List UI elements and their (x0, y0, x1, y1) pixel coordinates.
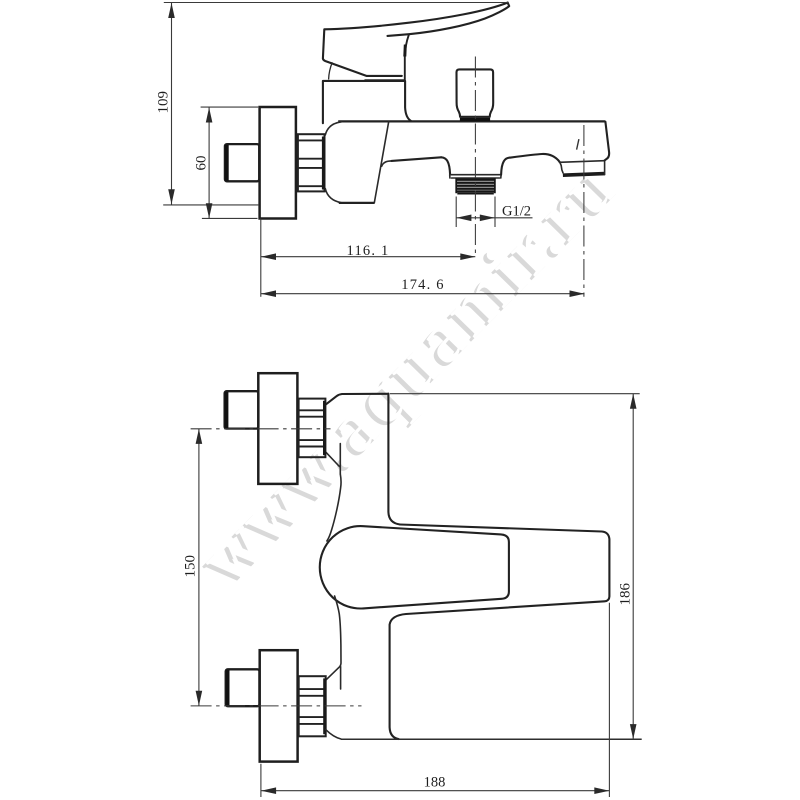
svg-text:150: 150 (182, 555, 198, 578)
svg-text:174. 6: 174. 6 (401, 277, 444, 293)
svg-text:116. 1: 116. 1 (347, 243, 390, 259)
svg-text:G1/2: G1/2 (502, 204, 531, 220)
svg-text:186: 186 (618, 583, 634, 606)
svg-text:60: 60 (194, 156, 210, 171)
svg-text:109: 109 (156, 91, 172, 114)
svg-text:188: 188 (424, 775, 446, 791)
